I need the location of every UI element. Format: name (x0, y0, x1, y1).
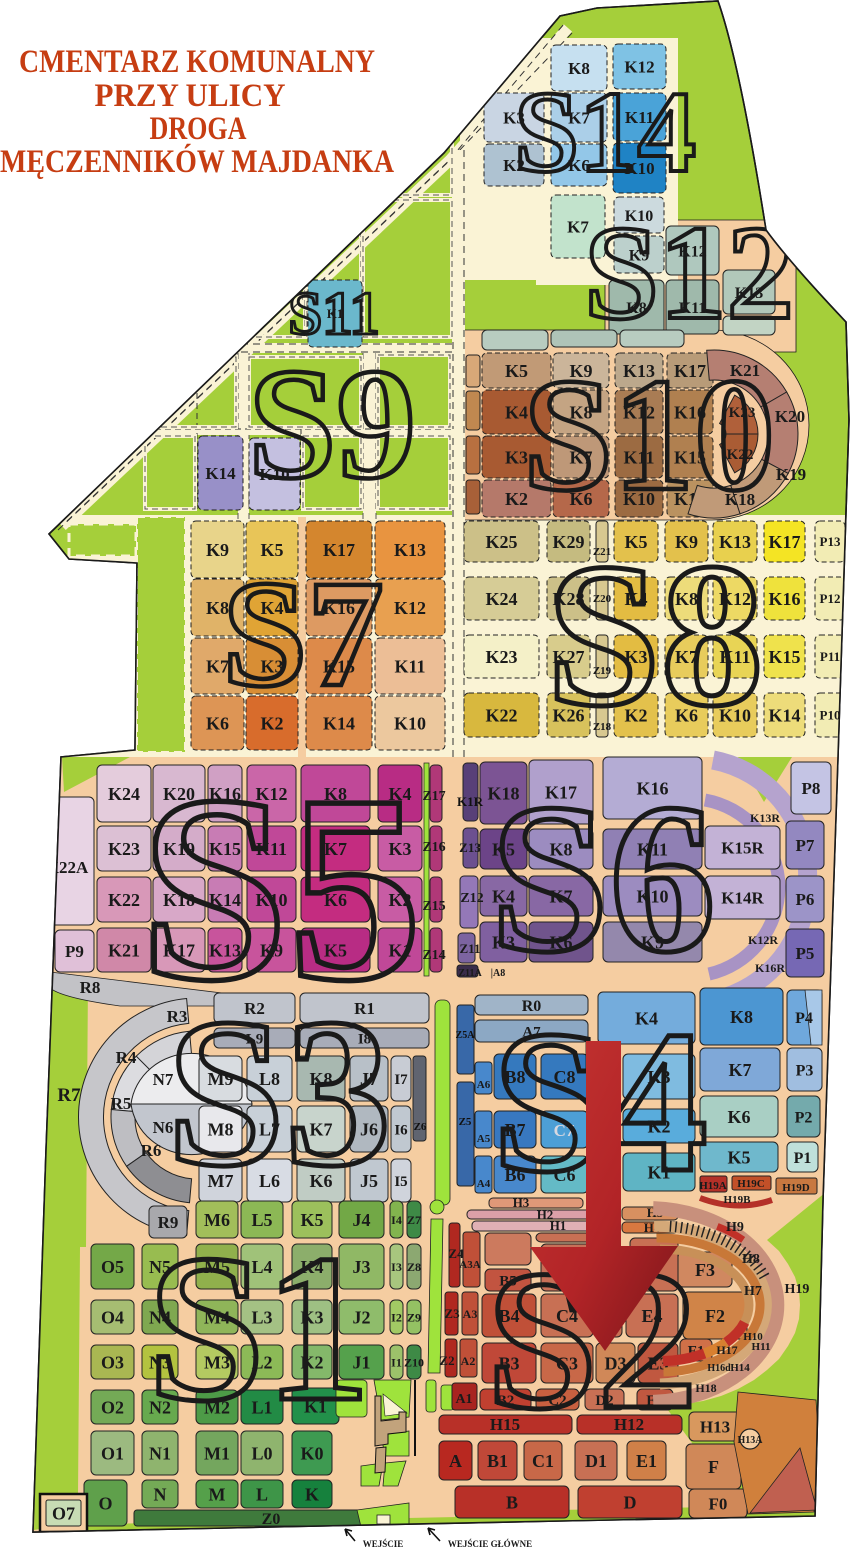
svg-text:S10: S10 (523, 346, 775, 525)
svg-text:I5: I5 (394, 1174, 407, 1190)
svg-text:K14: K14 (205, 464, 236, 483)
svg-text:Z3: Z3 (444, 1306, 460, 1321)
svg-text:PRZY ULICY: PRZY ULICY (95, 78, 286, 114)
svg-text:P3: P3 (796, 1062, 814, 1079)
svg-text:A6: A6 (477, 1079, 491, 1091)
svg-text:D: D (624, 1492, 637, 1512)
svg-text:K19: K19 (776, 465, 806, 484)
svg-text:P1: P1 (794, 1150, 812, 1167)
svg-text:A2: A2 (461, 1354, 476, 1368)
svg-text:I4: I4 (391, 1213, 402, 1227)
svg-text:K21: K21 (108, 940, 140, 960)
svg-text:K13R: K13R (750, 811, 780, 825)
svg-text:R4: R4 (116, 1048, 137, 1067)
svg-text:Z11A: Z11A (458, 968, 482, 979)
svg-text:K8: K8 (730, 1007, 753, 1027)
svg-text:K7: K7 (728, 1060, 751, 1080)
svg-text:K16R: K16R (755, 961, 785, 975)
svg-text:Z5A: Z5A (456, 1030, 476, 1041)
svg-text:H7: H7 (744, 1284, 762, 1299)
svg-text:H13A: H13A (738, 1435, 764, 1446)
svg-text:R7: R7 (57, 1085, 81, 1106)
svg-text:L0: L0 (251, 1443, 272, 1463)
svg-text:O4: O4 (101, 1307, 124, 1327)
svg-text:O5: O5 (101, 1257, 124, 1277)
svg-text:K23: K23 (485, 647, 517, 667)
svg-text:Z16: Z16 (422, 840, 445, 855)
svg-text:B: B (506, 1492, 518, 1512)
svg-text:H16d: H16d (707, 1363, 731, 1374)
svg-text:K15R: K15R (721, 839, 764, 858)
svg-text:I6: I6 (394, 1122, 408, 1138)
svg-text:H19: H19 (785, 1282, 810, 1297)
svg-text:K23: K23 (108, 839, 140, 859)
svg-text:K12: K12 (394, 598, 426, 618)
svg-text:K22: K22 (485, 705, 517, 725)
svg-text:K6: K6 (727, 1107, 750, 1127)
svg-text:H14: H14 (730, 1362, 750, 1374)
svg-text:O7: O7 (52, 1503, 75, 1523)
svg-text:R5: R5 (111, 1094, 132, 1113)
svg-text:K17: K17 (768, 532, 800, 552)
svg-text:CMENTARZ KOMUNALNY: CMENTARZ KOMUNALNY (19, 44, 375, 80)
svg-text:B1: B1 (487, 1451, 508, 1471)
svg-text:Z15: Z15 (422, 899, 445, 914)
svg-text:R8: R8 (80, 978, 101, 997)
svg-text:K13: K13 (394, 540, 426, 560)
svg-text:A3A: A3A (459, 1259, 480, 1271)
svg-text:S6: S6 (490, 760, 716, 997)
svg-text:S3: S3 (167, 975, 392, 1211)
svg-text:H17: H17 (716, 1343, 737, 1357)
svg-text:H19D: H19D (782, 1182, 810, 1194)
svg-text:I7: I7 (394, 1072, 408, 1088)
svg-text:S1: S1 (148, 1211, 371, 1445)
svg-text:MĘCZENNIKÓW MAJDANKA: MĘCZENNIKÓW MAJDANKA (0, 142, 394, 180)
svg-text:P12: P12 (820, 591, 841, 606)
svg-text:S14: S14 (514, 68, 696, 197)
svg-text:K14R: K14R (721, 889, 764, 908)
svg-text:P10: P10 (820, 708, 841, 723)
svg-text:H8: H8 (742, 1252, 760, 1267)
svg-text:S8: S8 (546, 520, 764, 749)
svg-text:Z11: Z11 (460, 941, 481, 956)
svg-text:K22: K22 (108, 890, 140, 910)
svg-text:H13: H13 (700, 1418, 730, 1437)
svg-text:DROGA: DROGA (150, 111, 247, 147)
svg-text:Z8: Z8 (407, 1260, 421, 1274)
svg-text:Z5: Z5 (459, 1116, 472, 1128)
svg-text:P9: P9 (65, 942, 84, 961)
svg-text:H11: H11 (752, 1341, 771, 1353)
svg-text:O: O (98, 1493, 112, 1513)
svg-text:S7: S7 (222, 550, 384, 719)
svg-text:Z9: Z9 (407, 1310, 421, 1324)
svg-text:O1: O1 (101, 1443, 124, 1463)
svg-text:R6: R6 (141, 1141, 162, 1160)
svg-text:WEJŚCIE: WEJŚCIE (363, 1539, 404, 1549)
svg-text:Z7: Z7 (407, 1213, 421, 1227)
svg-text:F: F (708, 1457, 719, 1477)
svg-text:P2: P2 (795, 1109, 813, 1126)
svg-text:A3: A3 (463, 1307, 478, 1321)
svg-text:F0: F0 (709, 1495, 728, 1514)
svg-text:N1: N1 (149, 1443, 171, 1463)
svg-text:H9: H9 (726, 1220, 744, 1235)
svg-text:K10: K10 (394, 713, 426, 733)
svg-text:Z0: Z0 (262, 1511, 281, 1528)
svg-text:Z2: Z2 (439, 1353, 454, 1368)
svg-text:S9: S9 (248, 336, 416, 512)
svg-text:K24: K24 (485, 589, 517, 609)
svg-text:A5: A5 (477, 1133, 491, 1145)
svg-text:Z14: Z14 (422, 948, 445, 963)
svg-text:I3: I3 (391, 1260, 402, 1274)
svg-text:K0: K0 (300, 1443, 323, 1463)
svg-text:P6: P6 (796, 890, 815, 909)
svg-text:A: A (449, 1451, 462, 1471)
svg-text:N: N (154, 1484, 167, 1504)
svg-text:I1: I1 (391, 1355, 402, 1369)
svg-text:Z6: Z6 (414, 1121, 427, 1133)
svg-text:Z10: Z10 (404, 1355, 424, 1369)
svg-text:Z17: Z17 (422, 789, 445, 804)
svg-text:M: M (209, 1484, 226, 1504)
svg-text:M1: M1 (204, 1443, 230, 1463)
svg-text:O2: O2 (101, 1397, 124, 1417)
svg-text:K15: K15 (768, 647, 800, 667)
svg-text:P5: P5 (796, 944, 815, 963)
svg-text:P11: P11 (820, 649, 840, 664)
svg-text:K14: K14 (768, 705, 800, 725)
svg-text:P8: P8 (802, 779, 821, 798)
svg-text:D1: D1 (585, 1451, 607, 1471)
svg-text:K25: K25 (485, 532, 517, 552)
svg-text:K11: K11 (394, 656, 425, 676)
svg-text:K16: K16 (768, 589, 800, 609)
svg-text:Z12: Z12 (460, 891, 483, 906)
svg-text:H19B: H19B (724, 1194, 752, 1206)
svg-text:Z13: Z13 (459, 840, 481, 855)
svg-text:P13: P13 (820, 534, 841, 549)
svg-text:A4: A4 (477, 1178, 491, 1190)
svg-text:K: K (305, 1484, 319, 1504)
svg-text:F2: F2 (705, 1306, 725, 1326)
svg-text:C1: C1 (532, 1451, 554, 1471)
svg-text:K20: K20 (775, 407, 805, 426)
svg-text:K12R: K12R (748, 933, 778, 947)
svg-text:O3: O3 (101, 1352, 124, 1372)
svg-text:P4: P4 (795, 1010, 813, 1027)
svg-text:K24: K24 (108, 784, 140, 804)
svg-text:WEJŚCIE GŁÓWNE: WEJŚCIE GŁÓWNE (448, 1539, 532, 1549)
svg-text:K5: K5 (727, 1147, 750, 1167)
svg-text:L: L (256, 1484, 268, 1504)
svg-text:E1: E1 (636, 1451, 657, 1471)
svg-text:H18: H18 (695, 1381, 716, 1395)
svg-text:A1: A1 (455, 1392, 472, 1407)
svg-text:I2: I2 (391, 1310, 402, 1324)
svg-text:K1R: K1R (457, 794, 484, 809)
svg-text:S12: S12 (584, 199, 794, 348)
svg-text:P7: P7 (796, 836, 815, 855)
svg-text:H19C: H19C (737, 1178, 765, 1190)
